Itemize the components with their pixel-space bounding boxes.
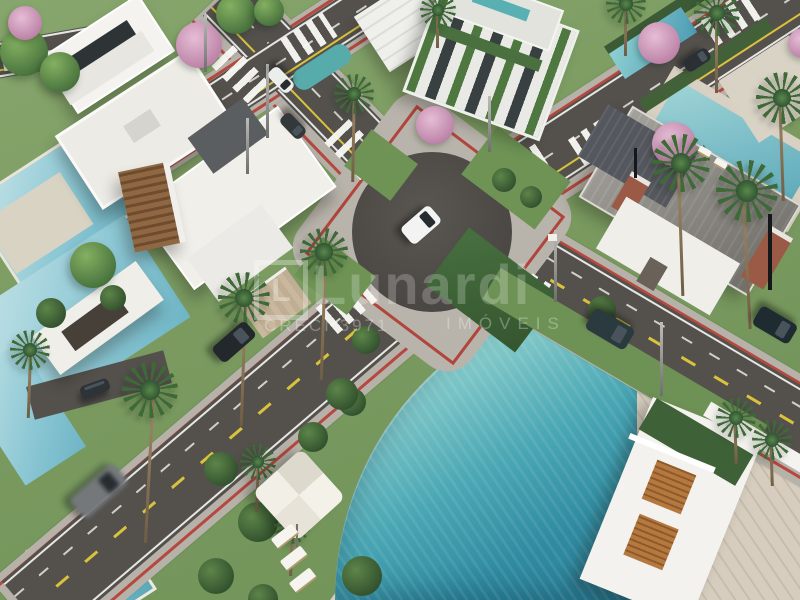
light-pole <box>246 118 249 174</box>
sun-lounger <box>280 545 308 571</box>
bush <box>204 452 238 486</box>
palm-tree <box>652 134 710 192</box>
bush <box>520 186 542 208</box>
tree <box>70 242 116 288</box>
chimney-flue <box>768 214 772 290</box>
palm-tree <box>122 362 178 418</box>
bush <box>326 378 358 410</box>
bush <box>248 584 278 600</box>
street-sign <box>548 234 557 241</box>
palm-tree <box>716 160 778 222</box>
flowering-tree <box>416 106 454 144</box>
bush <box>342 556 382 596</box>
palm-tree <box>606 0 646 24</box>
bush <box>492 168 516 192</box>
palm-tree <box>716 398 756 438</box>
bush <box>352 326 380 354</box>
tree <box>40 52 80 92</box>
bush <box>36 298 66 328</box>
light-pole <box>204 14 207 72</box>
bush <box>198 558 234 594</box>
bush <box>100 285 126 311</box>
palm-tree <box>10 330 50 370</box>
aerial-render-scene: L Lunardi CRECI 3971 IMÓVEIS <box>0 0 800 600</box>
palm-tree <box>218 272 270 324</box>
palm-tree <box>752 420 792 460</box>
parked-car <box>751 305 798 345</box>
light-pole <box>660 322 663 396</box>
palm-tree <box>334 74 374 114</box>
flowering-tree <box>8 6 42 40</box>
light-pole <box>488 96 491 152</box>
chimney-flue <box>634 148 637 178</box>
bush <box>298 422 328 452</box>
sun-lounger <box>289 567 317 593</box>
flowering-tree <box>176 22 222 68</box>
flowering-tree <box>638 22 680 64</box>
palm-tree <box>756 72 800 124</box>
palm-tree <box>300 228 348 276</box>
